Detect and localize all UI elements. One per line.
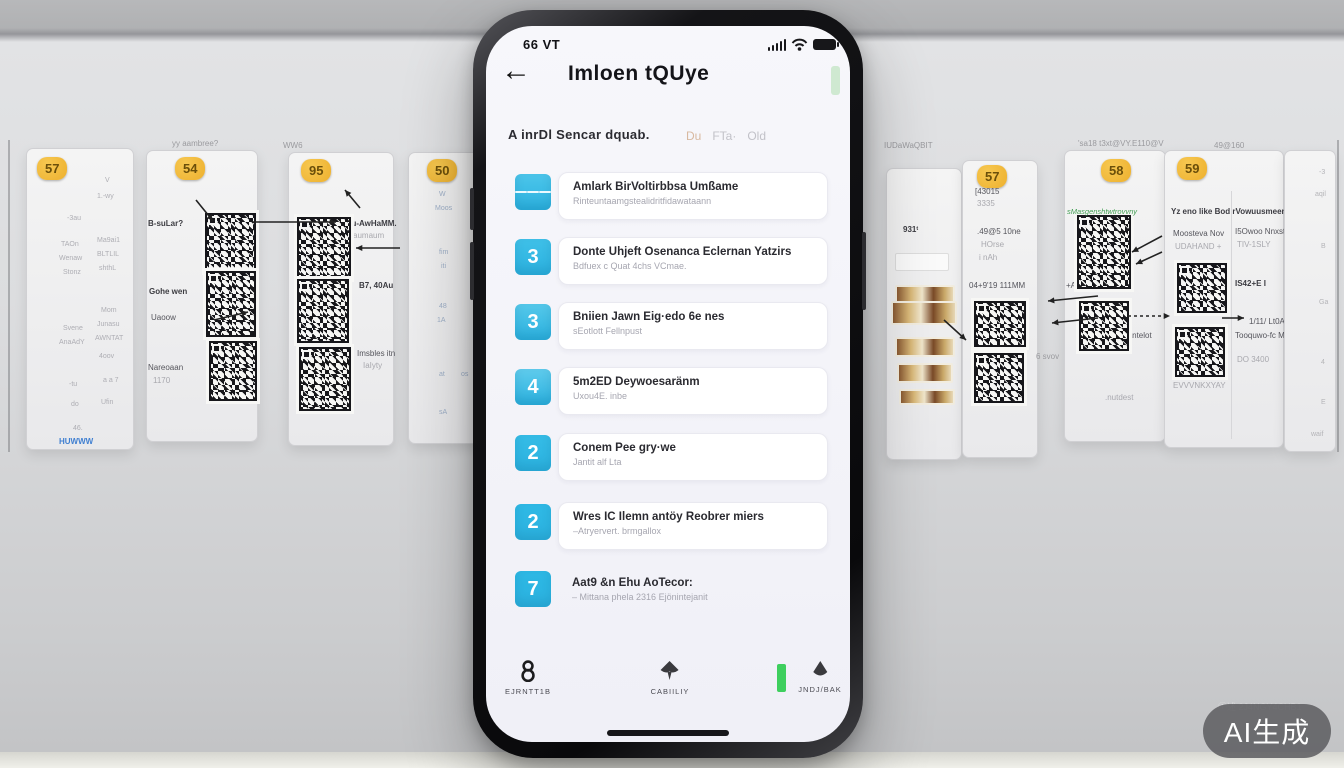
list-item: 2Wres IC Ilemn antöy Reobrer miers–Atrye… [486, 502, 850, 550]
qr-code [297, 279, 349, 343]
signal-icon [768, 39, 787, 51]
poster-label: Imsbles itn [357, 349, 395, 358]
poster-label: Yz eno like Bod rVowuusmeenn [1171, 207, 1291, 216]
poster-faint-word: 46. [73, 425, 83, 432]
arrow-annotation [938, 314, 972, 346]
poster-faint-word: Wenaw [59, 255, 82, 262]
watermark-pill: AI生成 [1203, 704, 1331, 758]
poster-label: 1170 [153, 376, 170, 385]
poster-faint-word: -3 [1319, 169, 1325, 176]
poster-faint-word: sA [439, 409, 447, 416]
poster-number-badge: 54 [175, 157, 205, 180]
list-item-card[interactable]: 5m2ED DeywoesaränmUxou4E. inbe [558, 367, 828, 415]
poster-label: Uaoow [151, 313, 176, 322]
wall-edge-left [8, 140, 10, 452]
filter-tag-fta[interactable]: FTa· [712, 129, 736, 143]
home-indicator[interactable] [607, 730, 729, 736]
arrow-annotation [1216, 312, 1250, 324]
list-item-subtitle: Bdfuex c Quat 4chs VCmae. [573, 261, 815, 271]
poster-blank-box [895, 253, 949, 271]
poster-label: B-suLar? [148, 219, 183, 228]
list-item-card[interactable]: Bniien Jawn Eig·edo 6e nessEotlott Felln… [558, 302, 828, 350]
poster-faint-word: 4 [1321, 359, 1325, 366]
list-lines-icon [515, 174, 551, 210]
qr-code [974, 353, 1024, 403]
list-item-title: Donte Uhjeft Osenanca Eclernan Yatzirs [573, 246, 815, 258]
poster-faint-word: do [71, 401, 79, 408]
poster-faint-word: Ma9ai1 [97, 237, 120, 244]
step-number-badge: 4 [515, 369, 551, 405]
step-number-badge: 2 [515, 504, 551, 540]
poster-faint-word: 1.-wy [97, 193, 114, 200]
qr-code [1177, 263, 1227, 313]
poster-label: EVVVNKXYAY [1173, 381, 1226, 390]
poster-faint-word: shthL [99, 265, 116, 272]
poster-label: DO 3400 [1237, 355, 1269, 364]
list-item-subtitle: Rinteuntaamgstealidritfidawataann [573, 196, 815, 206]
filter-tag-old[interactable]: Old [747, 129, 766, 143]
nav-item-indjbak[interactable]: JNDJ/BAK [798, 660, 841, 694]
status-time: 66 VT [523, 37, 560, 52]
photo-strip [899, 389, 955, 405]
list-item-card[interactable]: Donte Uhjeft Osenanca Eclernan YatzirsBd… [558, 237, 828, 285]
poster-panel: 59Yz eno like Bod rVowuusmeennMoosteva N… [1164, 150, 1284, 448]
poster-label: 04+9'19 111MM [969, 281, 1025, 290]
step-number-badge: 7 [515, 571, 551, 607]
power-button [862, 232, 866, 310]
poster-label: Gohe wen [149, 287, 187, 296]
battery-icon [813, 39, 836, 50]
back-button[interactable]: ← [501, 56, 531, 86]
poster-faint-word: iti [441, 263, 446, 270]
list-item: 45m2ED DeywoesaränmUxou4E. inbe [486, 367, 850, 415]
qr-code [974, 301, 1026, 347]
poster-faint-word: E [1321, 399, 1326, 406]
arrow-annotation [1042, 290, 1104, 307]
poster-faint-word: Junasu [97, 321, 120, 328]
status-icons [768, 38, 837, 51]
qr-code [299, 347, 351, 411]
poster-label: 931ᵗ [903, 225, 918, 234]
poster-number-badge: 58 [1101, 159, 1131, 182]
poster-panel: 57V1.-wy-3auTAOnMa9ai1WenawBLTLILStonzsh… [26, 148, 134, 450]
poster-faint-word: W [439, 191, 446, 198]
droplet-icon [811, 660, 829, 680]
poster-link-text: HUWWW [59, 437, 93, 446]
badge-line [539, 191, 551, 194]
arrow-annotation [208, 306, 254, 326]
poster-panel: 57[430153335.49@5 10neHOrsei nAh04+9'19 … [962, 160, 1038, 458]
poster-number-badge: 57 [977, 165, 1007, 188]
poster-label: IS42+E I [1235, 279, 1266, 288]
nav-accent-bar [777, 664, 786, 692]
poster-faint-word: AnaAdY [59, 339, 85, 346]
list-item-subtitle: Uxou4E. inbe [573, 391, 815, 401]
green-handwriting-note: sMasgenshtwtrovvny [1067, 207, 1137, 216]
list-item: 3Bniien Jawn Eig·edo 6e nessEotlott Fell… [486, 302, 850, 350]
poster-faint-word: Moos [435, 205, 452, 212]
nav-label: JNDJ/BAK [798, 685, 841, 694]
poster-faint-word: os [461, 371, 468, 378]
filter-tags: Du FTa· Old [686, 129, 766, 143]
wall-label: WW6 [283, 141, 303, 150]
poster-number-badge: 50 [427, 159, 457, 182]
poster-faint-word: 1A [437, 317, 446, 324]
poster-faint-word: Ufin [101, 399, 113, 406]
poster-label: UDAHAND + [1175, 242, 1221, 251]
poster-label: 3335 [977, 199, 995, 208]
section-label: A inrDl Sencar dquab. [508, 127, 650, 142]
arrow-annotation [1046, 312, 1104, 329]
poster-faint-word: Ga [1319, 299, 1328, 306]
list-item-title: Amlark BirVoltirbbsa Umßame [573, 181, 815, 193]
step-number-badge: 3 [515, 304, 551, 340]
poster-label: IaIyty [363, 361, 382, 370]
list-item: 2Conem Pee gry·weJantit alf Lta [486, 433, 850, 481]
poster-label: Nareoaan [148, 363, 183, 372]
wall-label: yy aambree? [172, 139, 218, 148]
poster-faint-word: BLTLIL [97, 251, 119, 258]
poster-label: Moosteva Nov [1173, 229, 1224, 238]
poster-label: TIV-1SLY [1237, 240, 1271, 249]
nav-item-profile[interactable]: EJRNTT1B [505, 660, 551, 696]
qr-code [1175, 327, 1225, 377]
poster-label: i nAh [979, 253, 997, 262]
poster-faint-word: Mom [101, 307, 117, 314]
list-item: 7Aat9 &n Ehu AoTecor:– Mittana phela 231… [486, 569, 850, 617]
phone: 66 VT ← Imloen tQUye A inrDl Sencar dqua… [473, 10, 863, 758]
nav-label: EJRNTT1B [505, 687, 551, 696]
page-title: Imloen tQUye [568, 62, 709, 86]
poster-label: .nutdest [1105, 393, 1133, 402]
list-item: 3Donte Uhjeft Osenanca Eclernan YatzirsB… [486, 237, 850, 285]
list-item-subtitle: –Atryervert. brmgallox [573, 526, 815, 536]
scene: 57V1.-wy-3auTAOnMa9ai1WenawBLTLILStonzsh… [0, 0, 1344, 768]
arrow-annotation [350, 242, 406, 254]
spade-icon [659, 660, 681, 682]
wall-label: 'sa18 t3xt@VY.E110@V [1078, 139, 1164, 148]
header-accent-pill [831, 66, 840, 95]
wall-label: 6 svov [1036, 352, 1059, 361]
list-item-title: Conem Pee gry·we [573, 442, 815, 454]
photo-strip [897, 363, 953, 383]
list-item-card[interactable]: Amlark BirVoltirbbsa UmßameRinteuntaamgs… [558, 172, 828, 220]
list-item-subtitle: – Mittana phela 2316 Ejönintejanit [572, 592, 816, 602]
poster-label: [43015 [975, 187, 999, 196]
poster-faint-word: fim [439, 249, 448, 256]
person-icon [519, 660, 537, 682]
poster-faint-word: aqil [1315, 191, 1326, 198]
poster-label: .49@5 10ne [977, 227, 1021, 236]
poster-faint-word: a a 7 [103, 377, 119, 384]
list-item-subtitle: sEotlott Fellnpust [573, 326, 815, 336]
poster-number-badge: 95 [301, 159, 331, 182]
list-item-title: Wres IC Ilemn antöy Reobrer miers [573, 511, 815, 523]
arrow-annotation [1122, 310, 1176, 322]
badge-line [527, 191, 539, 194]
filter-tag-du[interactable]: Du [686, 129, 701, 143]
wall-label: IUDaWaQBIT [884, 141, 933, 150]
arrow-annotation [246, 216, 342, 228]
step-number-badge: 2 [515, 435, 551, 471]
list-item-title: Bniien Jawn Eig·edo 6e nes [573, 311, 815, 323]
poster-label: HOrse [981, 240, 1004, 249]
poster-number-badge: 59 [1177, 157, 1207, 180]
wifi-icon [791, 38, 808, 51]
list-item-title: Aat9 &n Ehu AoTecor: [572, 577, 816, 589]
arrow-annotation [339, 184, 366, 214]
poster-faint-word: AWNTAT [95, 335, 123, 342]
volume-down-button [470, 242, 474, 300]
watermark-text: AI生成 [1224, 711, 1310, 751]
poster-faint-word: Svene [63, 325, 83, 332]
poster-faint-word: Stonz [63, 269, 81, 276]
nav-label: CABIILIY [651, 687, 690, 696]
list-item: Amlark BirVoltirbbsa UmßameRinteuntaamgs… [486, 172, 850, 220]
poster-label: B7, 40Au [359, 281, 393, 290]
poster-label: aumaum [353, 231, 384, 240]
list-item-card[interactable]: Aat9 &n Ehu AoTecor:– Mittana phela 2316… [558, 569, 828, 617]
list-item-title: 5m2ED Deywoesaränm [573, 376, 815, 388]
step-number-badge: 3 [515, 239, 551, 275]
arrow-annotation [1130, 246, 1168, 270]
phone-screen: 66 VT ← Imloen tQUye A inrDl Sencar dqua… [486, 26, 850, 742]
qr-code [206, 271, 256, 337]
volume-up-button [470, 188, 474, 230]
poster-label: Ju-AwHaMM. [347, 219, 397, 228]
list-item-card[interactable]: Wres IC Ilemn antöy Reobrer miers–Atryer… [558, 502, 828, 550]
poster-faint-word: B [1321, 243, 1326, 250]
qr-code [1077, 215, 1131, 289]
qr-code [209, 341, 257, 401]
wall-edge-right [1337, 140, 1339, 452]
poster-faint-word: V [105, 177, 110, 184]
poster-faint-word: 48 [439, 303, 447, 310]
wall-label: 49@160 [1214, 141, 1244, 150]
poster-faint-word: at [439, 371, 445, 378]
list-item-card[interactable]: Conem Pee gry·weJantit alf Lta [558, 433, 828, 481]
arrow-annotation [190, 194, 219, 227]
poster-faint-word: TAOn [61, 241, 79, 248]
poster-faint-word: 4oov [99, 353, 114, 360]
badge-line [515, 191, 527, 194]
poster-number-badge: 57 [37, 157, 67, 180]
poster-faint-word: waif [1311, 431, 1323, 438]
poster-faint-word: -3au [67, 215, 81, 222]
poster-faint-word: -tu [69, 381, 77, 388]
list-item-subtitle: Jantit alf Lta [573, 457, 815, 467]
poster-panel: -3aqilBGa4Ewaif [1284, 150, 1336, 452]
nav-item-cability[interactable]: CABIILIY [651, 660, 690, 696]
